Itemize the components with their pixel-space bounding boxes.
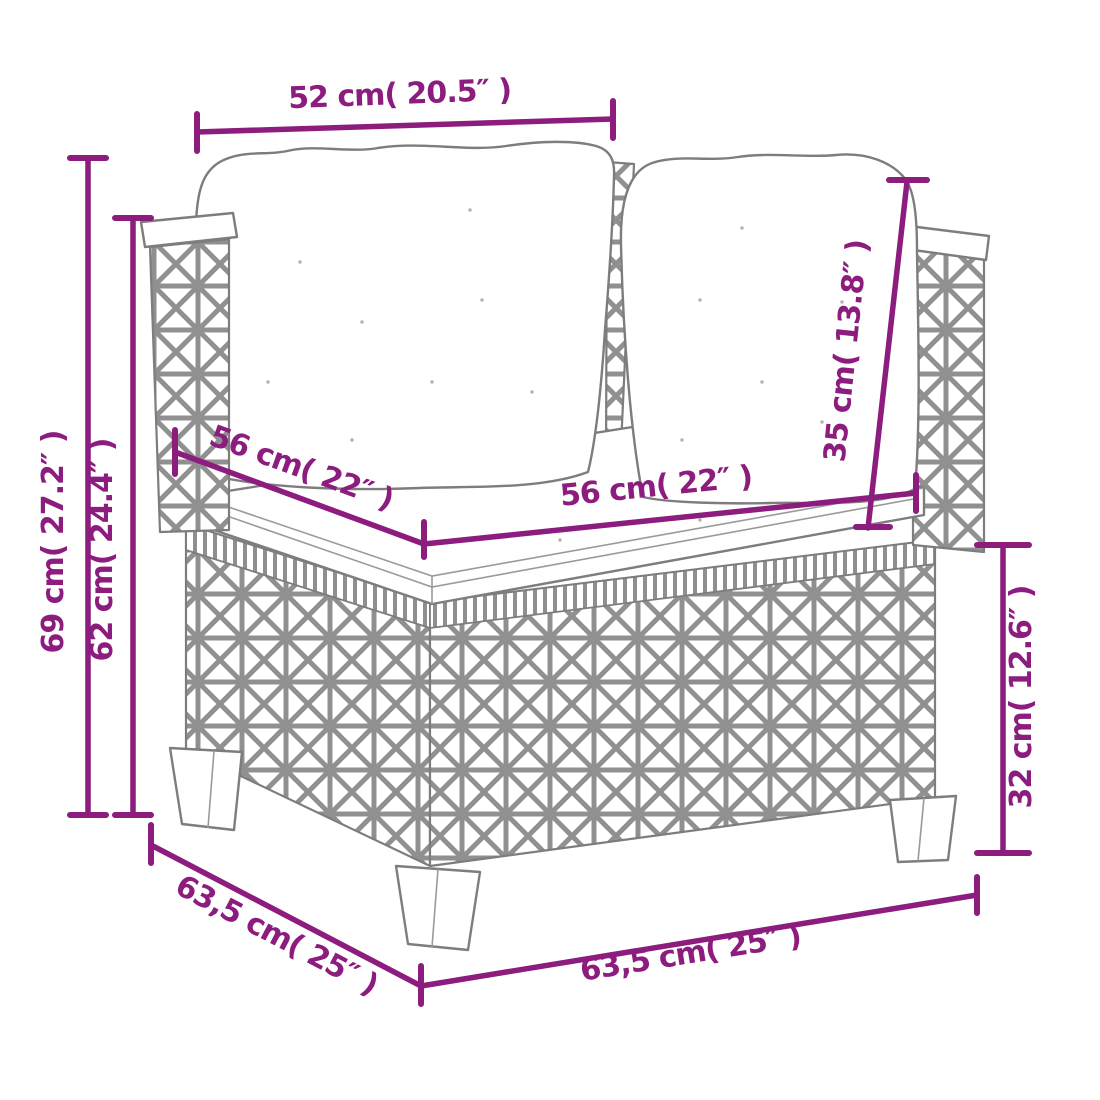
dim-back-width: 52 cm( 20.5″ ) [197, 73, 613, 151]
left-armrest [141, 213, 237, 532]
dim-back-width-label: 52 cm( 20.5″ ) [288, 73, 512, 117]
sofa-dimension-diagram: 52 cm( 20.5″ ) 69 cm( 27.2″ ) 62 cm( 24.… [0, 0, 1100, 1100]
dim-total-height-label: 69 cm( 27.2″ ) [36, 431, 71, 654]
dim-backrest-height: 62 cm( 24.4″ ) [85, 218, 151, 815]
dim-base-height-label: 32 cm( 12.6″ ) [1004, 586, 1039, 809]
dim-total-width: 63,5 cm( 25″ ) [421, 877, 977, 1004]
dim-total-depth-label: 63,5 cm( 25″ ) [170, 868, 384, 1003]
dim-total-depth-line [151, 845, 421, 986]
diagram-canvas: 52 cm( 20.5″ ) 69 cm( 27.2″ ) 62 cm( 24.… [0, 0, 1100, 1100]
dim-back-width-line [197, 119, 613, 132]
left-leg [170, 748, 242, 830]
left-armrest-column [150, 239, 229, 532]
dim-base-height: 32 cm( 12.6″ ) [977, 545, 1039, 853]
dim-backrest-height-label: 62 cm( 24.4″ ) [85, 439, 120, 662]
dim-total-depth: 63,5 cm( 25″ ) [151, 825, 421, 1003]
dim-total-width-label: 63,5 cm( 25″ ) [578, 919, 804, 989]
